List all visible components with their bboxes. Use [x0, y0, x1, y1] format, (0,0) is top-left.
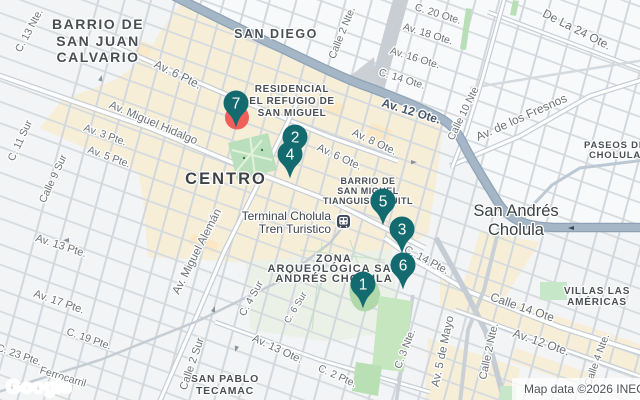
svg-text:VILLAS LAS: VILLAS LAS: [564, 286, 630, 297]
svg-text:3: 3: [398, 221, 407, 238]
svg-text:San Andrés: San Andrés: [473, 202, 558, 220]
svg-text:SAN PABLO: SAN PABLO: [191, 373, 259, 385]
svg-text:CHOLULA: CHOLULA: [589, 150, 640, 161]
svg-text:SAN DIEGO: SAN DIEGO: [234, 27, 318, 41]
svg-text:AMÉRICAS: AMÉRICAS: [567, 295, 627, 308]
svg-text:Google: Google: [6, 377, 71, 398]
svg-text:1: 1: [359, 276, 368, 293]
svg-text:CENTRO: CENTRO: [185, 170, 267, 188]
svg-text:RESIDENCIAL: RESIDENCIAL: [255, 84, 329, 95]
svg-text:4: 4: [286, 146, 295, 163]
svg-text:SAN JUAN: SAN JUAN: [56, 33, 140, 49]
svg-text:EL REFUGIO DE: EL REFUGIO DE: [249, 96, 334, 107]
svg-text:SAN MIGUEL: SAN MIGUEL: [258, 108, 327, 119]
svg-text:BARRIO DE: BARRIO DE: [340, 176, 395, 186]
svg-text:7: 7: [232, 95, 241, 112]
svg-text:Cholula: Cholula: [488, 221, 545, 239]
svg-text:TIANGUISNAHUITL: TIANGUISNAHUITL: [323, 196, 413, 206]
svg-text:Tren Turistico: Tren Turistico: [259, 222, 332, 236]
svg-text:BARRIO DE: BARRIO DE: [52, 16, 144, 32]
svg-text:5: 5: [379, 193, 388, 210]
svg-text:Terminal Cholula: Terminal Cholula: [242, 209, 332, 223]
svg-text:CALVARIO: CALVARIO: [56, 49, 139, 65]
svg-text:6: 6: [399, 257, 408, 274]
svg-text:Map data ©2026 INEGI: Map data ©2026 INEGI: [524, 382, 640, 396]
svg-text:TECAMAC: TECAMAC: [196, 385, 254, 397]
